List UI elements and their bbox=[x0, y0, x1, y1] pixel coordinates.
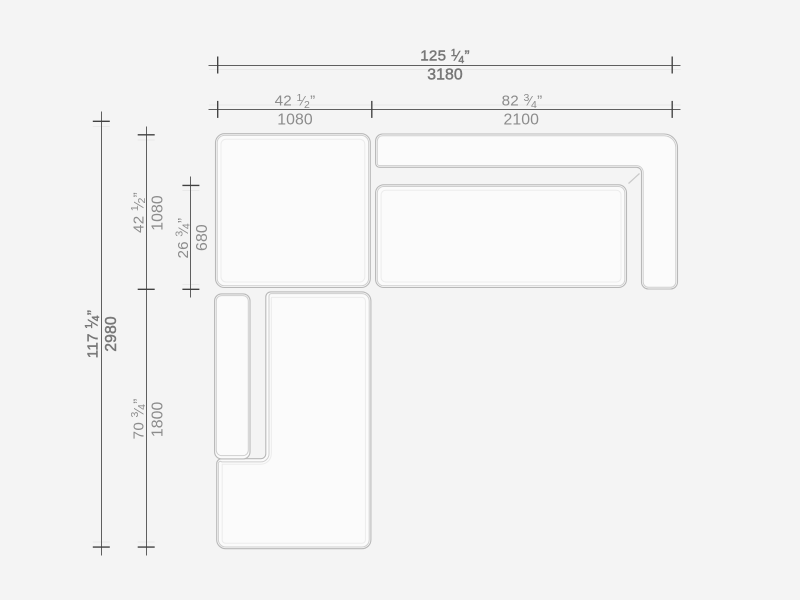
svg-text:70 3⁄4”: 70 3⁄4” bbox=[129, 398, 148, 439]
svg-text:42 1⁄2”: 42 1⁄2” bbox=[275, 92, 316, 111]
svg-text:2100: 2100 bbox=[504, 111, 540, 128]
svg-text:82 3⁄4”: 82 3⁄4” bbox=[502, 92, 543, 111]
svg-text:1080: 1080 bbox=[277, 111, 313, 128]
svg-text:42 1⁄2”: 42 1⁄2” bbox=[129, 192, 148, 233]
svg-text:1080: 1080 bbox=[150, 195, 167, 231]
svg-text:26 3⁄4”: 26 3⁄4” bbox=[173, 218, 192, 259]
svg-text:3180: 3180 bbox=[427, 67, 463, 84]
svg-text:680: 680 bbox=[194, 224, 211, 251]
svg-text:1800: 1800 bbox=[150, 402, 167, 438]
svg-text:2980: 2980 bbox=[103, 316, 120, 352]
